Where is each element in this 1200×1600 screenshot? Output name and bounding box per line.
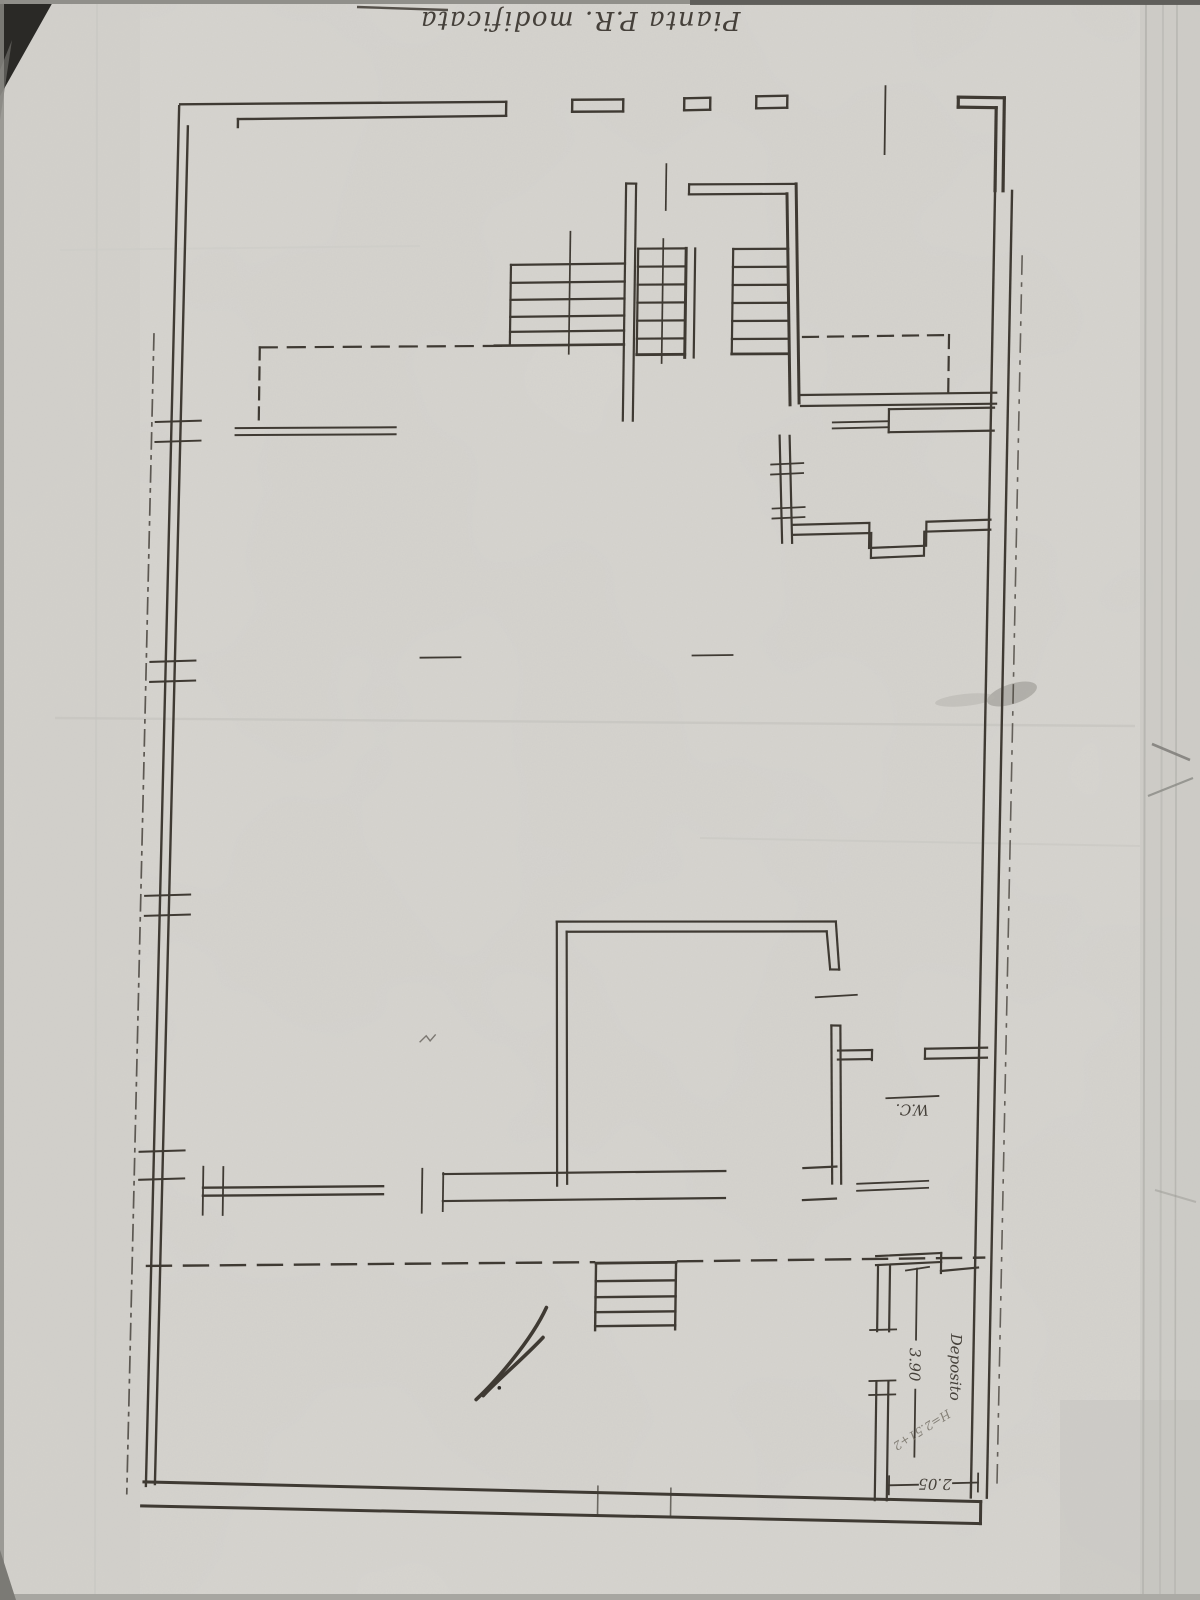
dimension-width-label: 2.05 <box>918 1475 953 1493</box>
drawing-title: Pianta P.R. modificata <box>419 5 741 35</box>
paper-texture <box>0 0 1200 1600</box>
floor-plan-canvas: Pianta P.R. modificata <box>0 0 1200 1600</box>
dimension-depth-label: 3.90 <box>905 1348 923 1382</box>
deposito-room-label: Deposito <box>946 1333 965 1401</box>
wc-room-label: W.C. <box>895 1100 929 1118</box>
scanned-floor-plan-page: Pianta P.R. modificata <box>0 0 1200 1600</box>
